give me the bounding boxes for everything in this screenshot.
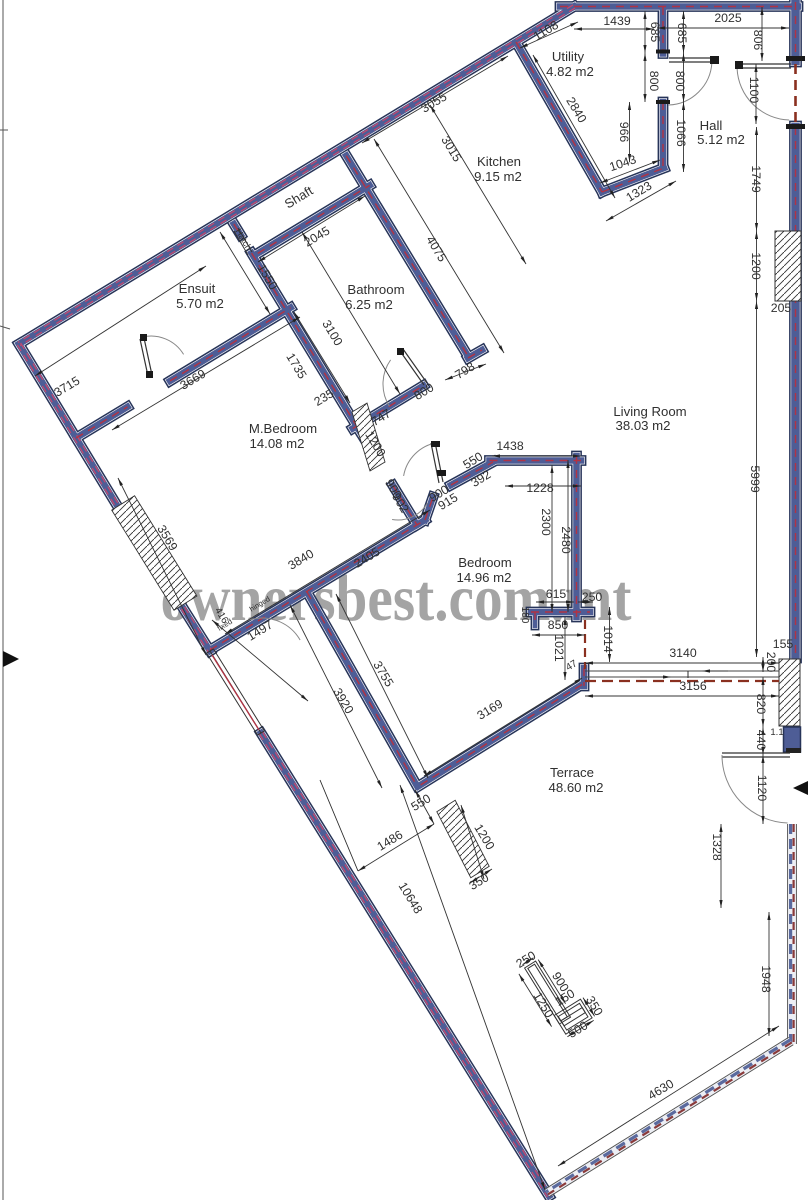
svg-text:6.25 m2: 6.25 m2 xyxy=(345,297,393,312)
svg-text:Utility: Utility xyxy=(552,49,585,64)
svg-text:1.1: 1.1 xyxy=(770,727,783,738)
svg-text:1749: 1749 xyxy=(749,165,763,193)
svg-text:5.12 m2: 5.12 m2 xyxy=(697,132,745,147)
svg-text:38.03 m2: 38.03 m2 xyxy=(616,418,671,433)
svg-text:14.08 m2: 14.08 m2 xyxy=(250,436,305,451)
svg-text:800: 800 xyxy=(673,71,687,92)
svg-text:685: 685 xyxy=(675,23,689,44)
svg-text:3140: 3140 xyxy=(669,646,697,660)
svg-text:5.70 m2: 5.70 m2 xyxy=(176,296,224,311)
svg-text:1066: 1066 xyxy=(674,119,688,147)
svg-text:Bathroom: Bathroom xyxy=(347,282,404,297)
svg-text:820: 820 xyxy=(754,694,768,715)
svg-text:1200: 1200 xyxy=(749,252,763,280)
svg-text:685: 685 xyxy=(648,22,662,43)
svg-text:2480: 2480 xyxy=(559,526,573,554)
svg-text:M.Bedroom: M.Bedroom xyxy=(249,421,317,436)
svg-text:180: 180 xyxy=(519,607,530,624)
svg-text:48.60 m2: 48.60 m2 xyxy=(549,780,604,795)
svg-text:806: 806 xyxy=(751,30,765,51)
svg-text:9.15 m2: 9.15 m2 xyxy=(474,169,522,184)
svg-text:155: 155 xyxy=(773,637,794,651)
svg-text:1948: 1948 xyxy=(759,965,773,993)
svg-text:800: 800 xyxy=(647,71,661,92)
svg-text:4.82 m2: 4.82 m2 xyxy=(546,64,594,79)
svg-text:615: 615 xyxy=(546,587,567,601)
svg-text:205: 205 xyxy=(771,301,792,315)
svg-text:1014: 1014 xyxy=(601,625,615,653)
svg-text:1021: 1021 xyxy=(552,634,566,662)
svg-text:Hall: Hall xyxy=(700,118,723,133)
svg-text:Kitchen: Kitchen xyxy=(477,154,521,169)
svg-text:Ensuit: Ensuit xyxy=(179,281,216,296)
svg-text:Bedroom: Bedroom xyxy=(458,555,512,570)
svg-text:250: 250 xyxy=(582,590,603,604)
svg-text:440: 440 xyxy=(754,730,768,751)
svg-text:5999: 5999 xyxy=(748,465,762,493)
svg-text:1100: 1100 xyxy=(747,77,761,104)
svg-text:Living Room: Living Room xyxy=(613,404,686,419)
svg-text:1439: 1439 xyxy=(603,14,631,28)
svg-text:1328: 1328 xyxy=(710,833,724,861)
svg-text:966: 966 xyxy=(617,122,631,143)
svg-text:3156: 3156 xyxy=(679,679,707,693)
svg-text:1120: 1120 xyxy=(755,775,769,802)
svg-text:2025: 2025 xyxy=(714,11,742,25)
svg-text:Terrace: Terrace xyxy=(550,765,594,780)
svg-text:2300: 2300 xyxy=(539,508,553,536)
svg-text:14.96 m2: 14.96 m2 xyxy=(457,570,512,585)
svg-text:1438: 1438 xyxy=(496,439,524,453)
svg-text:1228: 1228 xyxy=(526,481,554,495)
svg-text:200: 200 xyxy=(764,652,778,673)
svg-text:850: 850 xyxy=(548,618,569,632)
